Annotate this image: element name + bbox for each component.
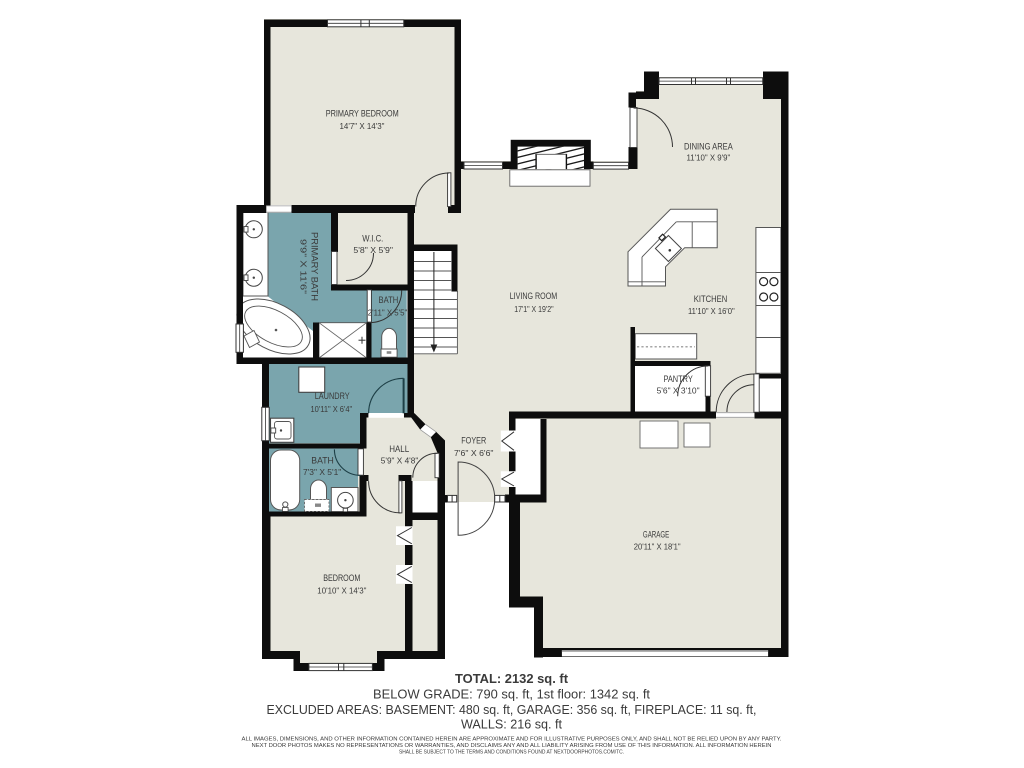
svg-text:HALL: HALL <box>389 444 409 454</box>
svg-text:5'8" X 5'9": 5'8" X 5'9" <box>353 245 393 255</box>
svg-text:TOTAL: 2132 sq. ft: TOTAL: 2132 sq. ft <box>455 671 569 686</box>
svg-text:LAUNDRY: LAUNDRY <box>315 391 350 401</box>
svg-text:10'10" X 14'3": 10'10" X 14'3" <box>317 586 366 596</box>
svg-text:NEXT DOOR PHOTOS MAKES NO REPR: NEXT DOOR PHOTOS MAKES NO REPRESENTATION… <box>252 743 772 749</box>
svg-text:20'11" X 18'1": 20'11" X 18'1" <box>634 542 681 552</box>
svg-text:WALLS: 216 sq. ft: WALLS: 216 sq. ft <box>461 717 562 732</box>
svg-text:BEDROOM: BEDROOM <box>323 573 360 583</box>
svg-text:7'3" X 5'1": 7'3" X 5'1" <box>303 467 341 477</box>
svg-text:10'11" X 6'4": 10'11" X 6'4" <box>311 404 353 414</box>
svg-text:11'10" X 9'9": 11'10" X 9'9" <box>687 153 731 163</box>
svg-text:5'6" X 3'10": 5'6" X 3'10" <box>657 386 700 396</box>
svg-text:BATH: BATH <box>311 456 334 466</box>
svg-text:14'7" X 14'3": 14'7" X 14'3" <box>340 121 385 131</box>
svg-text:17'1" X 19'2": 17'1" X 19'2" <box>514 304 553 314</box>
svg-text:LIVING ROOM: LIVING ROOM <box>510 291 558 301</box>
svg-text:5'9" X 4'8": 5'9" X 4'8" <box>381 456 419 466</box>
svg-text:PANTRY: PANTRY <box>664 374 693 384</box>
svg-text:DINING AREA: DINING AREA <box>684 142 733 152</box>
svg-text:2'11" X 5'5": 2'11" X 5'5" <box>368 308 408 318</box>
svg-text:BELOW GRADE: 790 sq. ft, 1st f: BELOW GRADE: 790 sq. ft, 1st floor: 1342… <box>373 687 650 702</box>
svg-text:KITCHEN: KITCHEN <box>694 294 727 304</box>
svg-text:FOYER: FOYER <box>461 436 486 446</box>
svg-text:EXCLUDED AREAS: BASEMENT: 480: EXCLUDED AREAS: BASEMENT: 480 sq. ft, GA… <box>267 702 757 717</box>
svg-text:PRIMARY BEDROOM: PRIMARY BEDROOM <box>326 108 399 118</box>
svg-text:BATH: BATH <box>379 295 399 305</box>
svg-text:GARAGE: GARAGE <box>643 530 669 540</box>
svg-text:SHALL BE SUBJECT TO THE TERMS: SHALL BE SUBJECT TO THE TERMS AND CONDIT… <box>399 750 624 756</box>
svg-text:ALL IMAGES, DIMENSIONS, AND OT: ALL IMAGES, DIMENSIONS, AND OTHER INFORM… <box>242 737 782 743</box>
svg-text:11'10" X 16'0": 11'10" X 16'0" <box>688 306 735 316</box>
svg-text:7'6" X 6'6": 7'6" X 6'6" <box>454 448 494 458</box>
svg-text:9'9" X 11'6": 9'9" X 11'6" <box>298 239 308 294</box>
svg-text:W.I.C.: W.I.C. <box>362 234 383 244</box>
svg-text:PRIMARY BATH: PRIMARY BATH <box>309 232 319 301</box>
